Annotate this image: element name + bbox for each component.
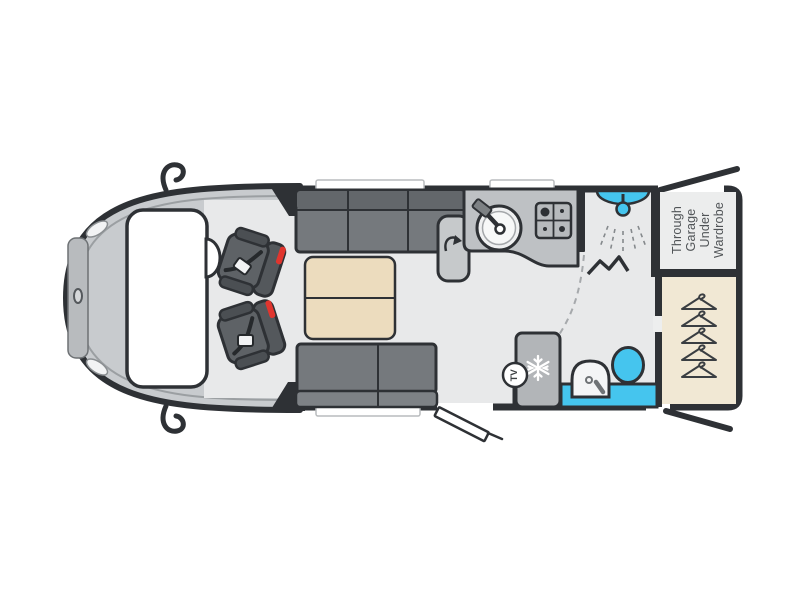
floorplan-canvas [0, 0, 800, 600]
table [305, 257, 395, 339]
floorplan-page: Through Garage Under Wardrobe TV [0, 0, 800, 600]
tv-circle [503, 363, 527, 387]
wardrobe [662, 277, 736, 404]
mirror-bottom-icon [163, 406, 183, 431]
sofa-bottom [296, 344, 437, 407]
mirror-top-icon [163, 165, 183, 190]
cab [66, 165, 300, 432]
basin-icon [572, 361, 609, 397]
toilet-icon [613, 348, 644, 383]
windscreen [127, 210, 207, 387]
garage-note-area [660, 192, 736, 269]
wall-kitchen-shower [577, 188, 585, 252]
wall-wardrobe-top [651, 269, 740, 277]
front-badge [74, 289, 82, 303]
entrance-door [434, 403, 502, 441]
wall-shower-garage [651, 188, 660, 275]
hob-icon [536, 203, 571, 238]
